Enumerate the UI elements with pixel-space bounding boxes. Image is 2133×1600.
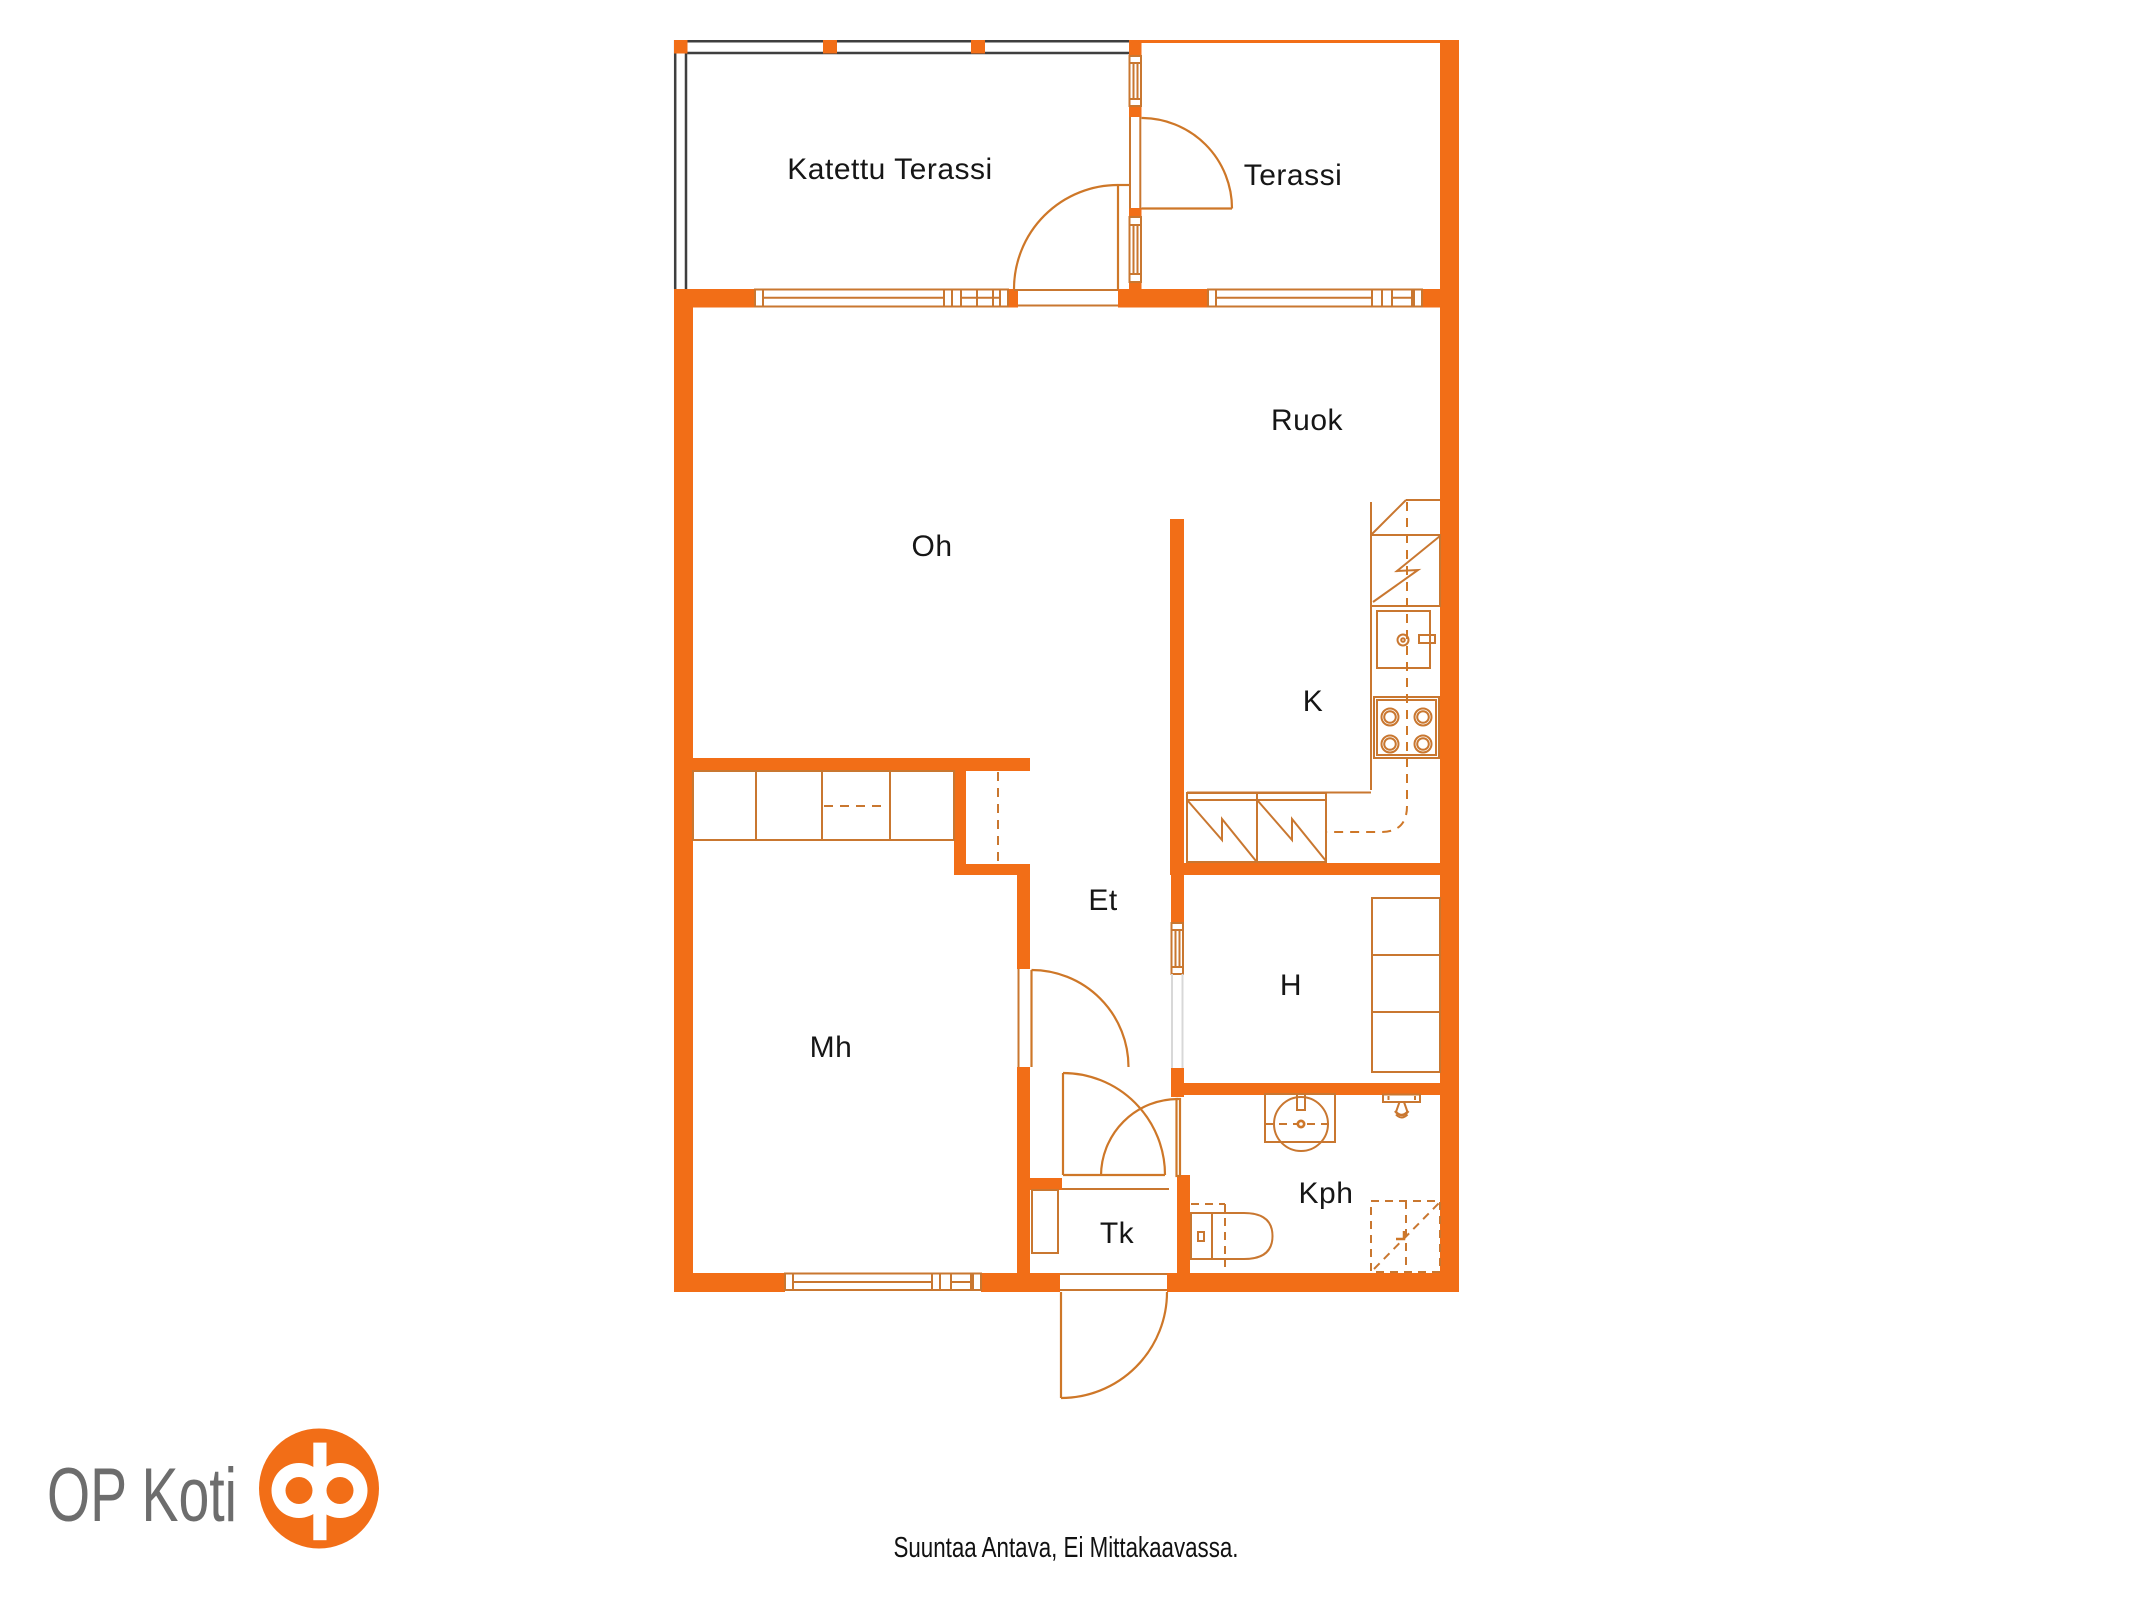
svg-text:K: K (1303, 685, 1324, 718)
svg-text:Et: Et (1088, 884, 1118, 917)
svg-text:Katettu Terassi: Katettu Terassi (787, 153, 992, 186)
svg-text:Ruok: Ruok (1271, 404, 1344, 437)
svg-text:H: H (1280, 969, 1302, 1002)
svg-text:Oh: Oh (911, 530, 952, 563)
svg-text:Suuntaa Antava, Ei Mittakaavas: Suuntaa Antava, Ei Mittakaavassa. (894, 1532, 1239, 1564)
svg-text:Terassi: Terassi (1244, 159, 1343, 192)
svg-text:Tk: Tk (1100, 1217, 1135, 1250)
svg-text:Kph: Kph (1299, 1177, 1354, 1210)
svg-text:OP Koti: OP Koti (47, 1453, 237, 1538)
svg-text:Mh: Mh (810, 1031, 853, 1064)
